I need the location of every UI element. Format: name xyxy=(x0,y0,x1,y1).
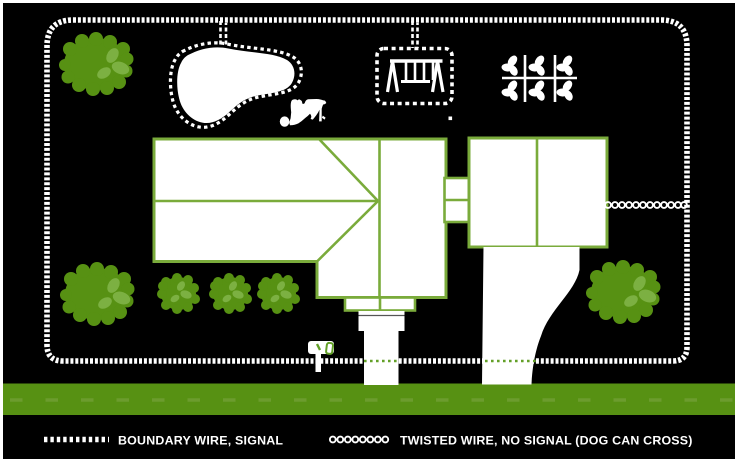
svg-text:BOUNDARY WIRE, SIGNAL: BOUNDARY WIRE, SIGNAL xyxy=(118,434,283,448)
svg-text:TWISTED WIRE, NO SIGNAL (DOG C: TWISTED WIRE, NO SIGNAL (DOG CAN CROSS) xyxy=(400,434,693,448)
